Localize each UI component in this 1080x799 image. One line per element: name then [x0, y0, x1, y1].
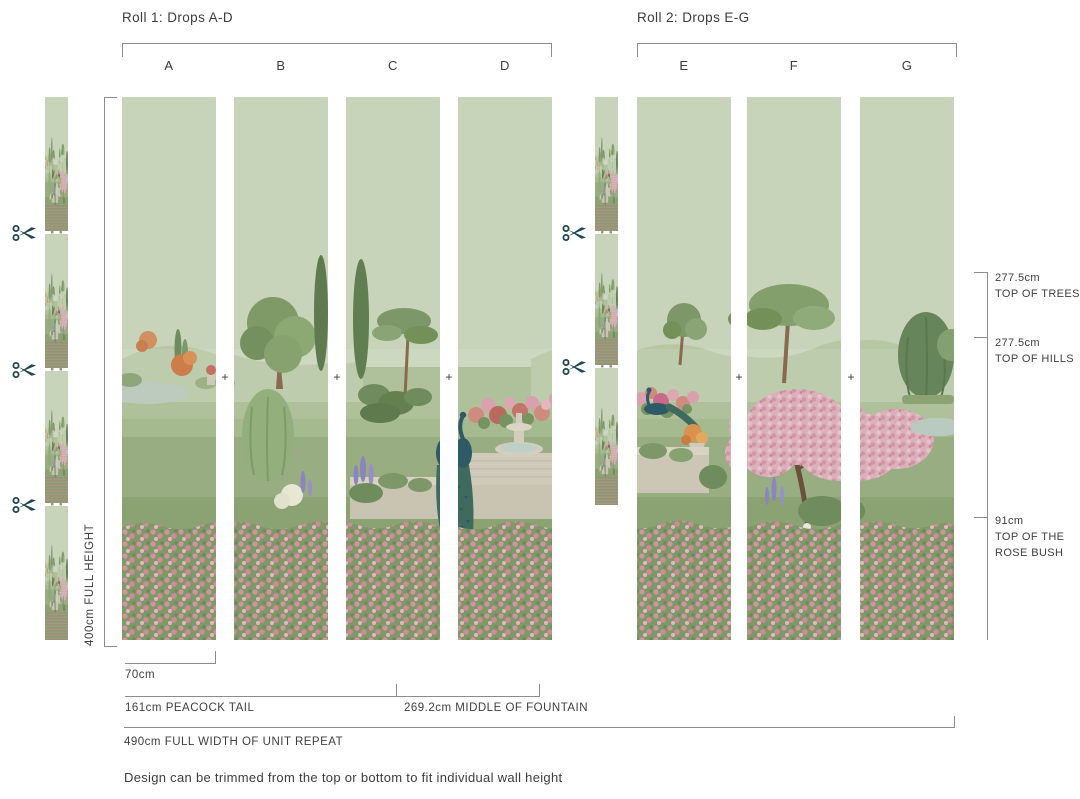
drop-width-dimension-line [125, 651, 216, 664]
middle-of-fountain-label: 269.2cm MIDDLE OF FOUNTAIN [404, 702, 588, 714]
drop-label-e: E [637, 58, 731, 73]
repeat-strip-middle [595, 97, 618, 505]
scissors-icon [562, 358, 589, 376]
mural-panel-c [346, 97, 440, 640]
register-mark: + [732, 370, 746, 384]
cut-line [45, 231, 68, 234]
mural-panel-b [234, 97, 328, 640]
peacock-fountain-dimension-line [125, 684, 540, 697]
trim-note: Design can be trimmed from the top or bo… [124, 770, 562, 785]
scissors-icon [12, 361, 39, 379]
mural-panel-e [637, 97, 731, 640]
annotation-value: 91cm [995, 514, 1080, 530]
drop-width-label: 70cm [125, 669, 155, 681]
annotation-top-of-rose-bush: 91cm TOP OF THE ROSE BUSH [995, 514, 1080, 562]
annotation-top-of-hills: 277.5cm TOP OF HILLS [995, 336, 1080, 368]
roll-1-title: Roll 1: Drops A-D [122, 10, 233, 25]
cut-line [595, 231, 618, 234]
roll-2-title: Roll 2: Drops E-G [637, 10, 750, 25]
register-mark: + [218, 370, 232, 384]
top-of-hills-tick [974, 337, 988, 338]
right-dimension-line [974, 272, 988, 640]
annotation-value: 277.5cm [995, 271, 1080, 287]
mural-panel-g [860, 97, 954, 640]
scissors-icon [12, 224, 39, 242]
drop-label-d: D [458, 58, 552, 73]
full-height-label: 400cm FULL HEIGHT [84, 528, 96, 646]
top-of-rose-bush-tick [974, 517, 988, 518]
repeat-strip-left [45, 97, 68, 640]
cut-line [595, 365, 618, 368]
mural-panel-d [458, 97, 552, 640]
drop-label-a: A [122, 58, 216, 73]
annotation-top-of-trees: 277.5cm TOP OF TREES [995, 271, 1080, 303]
roll-1-bracket [122, 43, 552, 57]
drop-label-c: C [346, 58, 440, 73]
drop-label-f: F [747, 58, 841, 73]
annotation-value: 277.5cm [995, 336, 1080, 352]
full-height-dimension-line [104, 97, 117, 647]
annotation-label: TOP OF HILLS [995, 353, 1074, 365]
scissors-icon [12, 496, 39, 514]
peacock-tail-label: 161cm PEACOCK TAIL [125, 702, 254, 714]
cut-line [45, 503, 68, 506]
full-width-dimension-line [124, 716, 955, 728]
register-mark: + [442, 370, 456, 384]
mural-panel-a [122, 97, 216, 640]
peacock-tail-tick [396, 684, 397, 697]
drop-label-g: G [860, 58, 954, 73]
cut-line [45, 368, 68, 371]
mural-panel-f [747, 97, 841, 640]
wallpaper-layout-diagram: Roll 1: Drops A-D Roll 2: Drops E-G A B … [0, 0, 1080, 799]
register-mark: + [330, 370, 344, 384]
scissors-icon [562, 224, 589, 242]
roll-2-bracket [637, 43, 957, 57]
full-width-label: 490cm FULL WIDTH OF UNIT REPEAT [124, 736, 343, 748]
annotation-label: TOP OF THE ROSE BUSH [995, 531, 1064, 559]
drop-label-b: B [234, 58, 328, 73]
register-mark: + [844, 370, 858, 384]
annotation-label: TOP OF TREES [995, 288, 1080, 300]
